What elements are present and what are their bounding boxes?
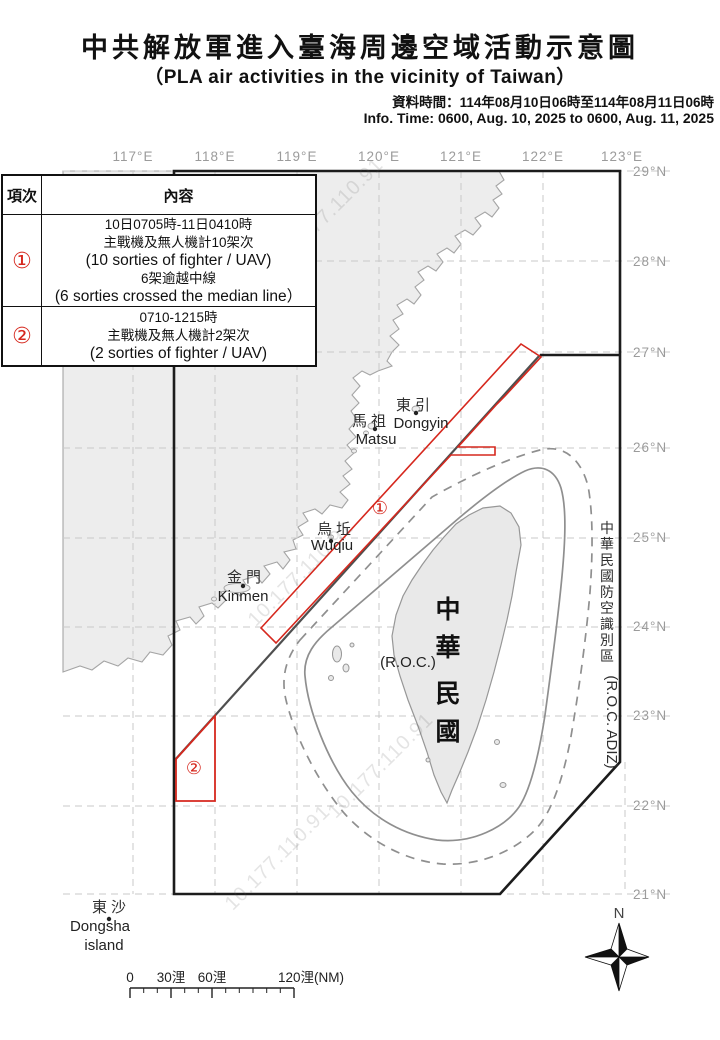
lat-label: 24°N (633, 619, 667, 634)
dongyin-label-en: Dongyin (393, 415, 448, 432)
wuqiu-label-zh: 烏坵 (317, 521, 355, 538)
table-row: ② 0710-1215時 主戰機及無人機計2架次 (2 sorties of f… (3, 307, 315, 365)
adiz-char: 國 (600, 568, 614, 584)
adiz-char: 華 (600, 536, 614, 552)
sortie-summary-table: 項次 內容 ① 10日0705時-11日0410時 主戰機及無人機計10架次 (… (1, 174, 317, 367)
dongsha-label-zh: 東沙 (92, 899, 130, 916)
latitude-labels: 29°N 28°N 27°N 26°N 25°N 24°N 23°N 22°N … (633, 164, 667, 902)
watermark-text: 10.177.110.91 (221, 801, 335, 915)
row-1-line: 主戰機及無人機計10架次 (103, 234, 253, 252)
compass-rose-icon (585, 923, 649, 991)
lat-label: 29°N (633, 164, 667, 179)
scale-120: 120浬(NM) (278, 970, 344, 985)
lat-label: 23°N (633, 708, 667, 723)
matsu-label-en: Matsu (356, 431, 397, 448)
longitude-labels: 117°E 118°E 119°E 120°E 121°E 122°E 123°… (113, 149, 643, 164)
taiwan-char: 中 (435, 596, 460, 624)
penghu-islands (333, 646, 342, 662)
scale-60: 60浬 (198, 970, 227, 985)
adiz-vertical-caption: 中 華 民 國 防 空 識 別 區 (R.O.C. ADIZ) (600, 520, 620, 769)
taiwan-char: 國 (435, 718, 460, 746)
lon-label: 122°E (522, 149, 564, 164)
lon-label: 118°E (195, 149, 236, 164)
pla-activity-map-page: 10.177.110.91 10.177.110.91 10.177.110.9… (0, 0, 720, 1040)
adiz-char: 識 (600, 616, 614, 632)
wuqiu-label-en: Wuqiu (311, 537, 353, 554)
lat-label: 25°N (633, 530, 667, 545)
lat-label: 28°N (633, 254, 667, 269)
roc-label: (R.O.C.) (380, 654, 436, 671)
area-1-label: ① (372, 498, 388, 518)
lon-label: 123°E (601, 149, 643, 164)
scale-bar (130, 988, 294, 998)
row-1-line: 10日0705時-11日0410時 (105, 216, 253, 234)
adiz-char: 民 (600, 552, 614, 568)
adiz-caption-en: (R.O.C. ADIZ) (603, 675, 620, 768)
scale-0: 0 (126, 970, 134, 985)
row-1-line: 6架逾越中線 (141, 270, 216, 288)
adiz-char: 中 (600, 520, 614, 536)
dongsha-island-label-en: island (84, 937, 123, 954)
lat-label: 26°N (633, 440, 667, 455)
orchid-island (500, 783, 506, 788)
col-header-item: 項次 (3, 176, 42, 214)
scale-30: 30浬 (157, 970, 186, 985)
lat-label: 27°N (633, 345, 667, 360)
taiwan-char: 民 (435, 680, 460, 708)
row-2-line: (2 sorties of fighter / UAV) (90, 345, 267, 363)
green-island (495, 740, 500, 745)
adiz-char: 防 (600, 584, 614, 600)
adiz-char: 空 (600, 600, 614, 616)
scale-bar-labels: 0 30浬 60浬 120浬(NM) (126, 970, 344, 985)
row-1-number: ① (12, 250, 32, 272)
area-2-label: ② (186, 758, 202, 778)
row-1-line: (6 sorties crossed the median line） (55, 288, 302, 306)
adiz-char: 別 (600, 632, 614, 648)
lon-label: 119°E (277, 149, 318, 164)
table-header-row: 項次 內容 (3, 176, 315, 215)
table-row: ① 10日0705時-11日0410時 主戰機及無人機計10架次 (10 sor… (3, 215, 315, 307)
kinmen-label-zh: 金門 (227, 569, 265, 586)
matsu-label-zh: 馬祖 (352, 413, 390, 430)
row-1-line: (10 sorties of fighter / UAV) (86, 252, 272, 270)
lon-label: 120°E (358, 149, 400, 164)
row-2-line: 主戰機及無人機計2架次 (107, 327, 250, 345)
dongsha-label-en: Dongsha (70, 918, 131, 935)
lon-label: 117°E (113, 149, 154, 164)
dongyin-label-zh: 東引 (396, 397, 434, 414)
taiwan-char: 華 (435, 634, 460, 662)
compass-north-label: N (614, 905, 625, 922)
adiz-char: 區 (600, 648, 614, 664)
row-2-line: 0710-1215時 (139, 309, 217, 327)
taiwan-strait-map: 10.177.110.91 10.177.110.91 10.177.110.9… (0, 0, 720, 1040)
row-2-number: ② (12, 325, 32, 347)
lat-label: 22°N (633, 798, 667, 813)
lat-label: 21°N (633, 887, 667, 902)
lon-label: 121°E (440, 149, 482, 164)
col-header-content: 內容 (42, 176, 315, 214)
kinmen-label-en: Kinmen (218, 588, 269, 605)
